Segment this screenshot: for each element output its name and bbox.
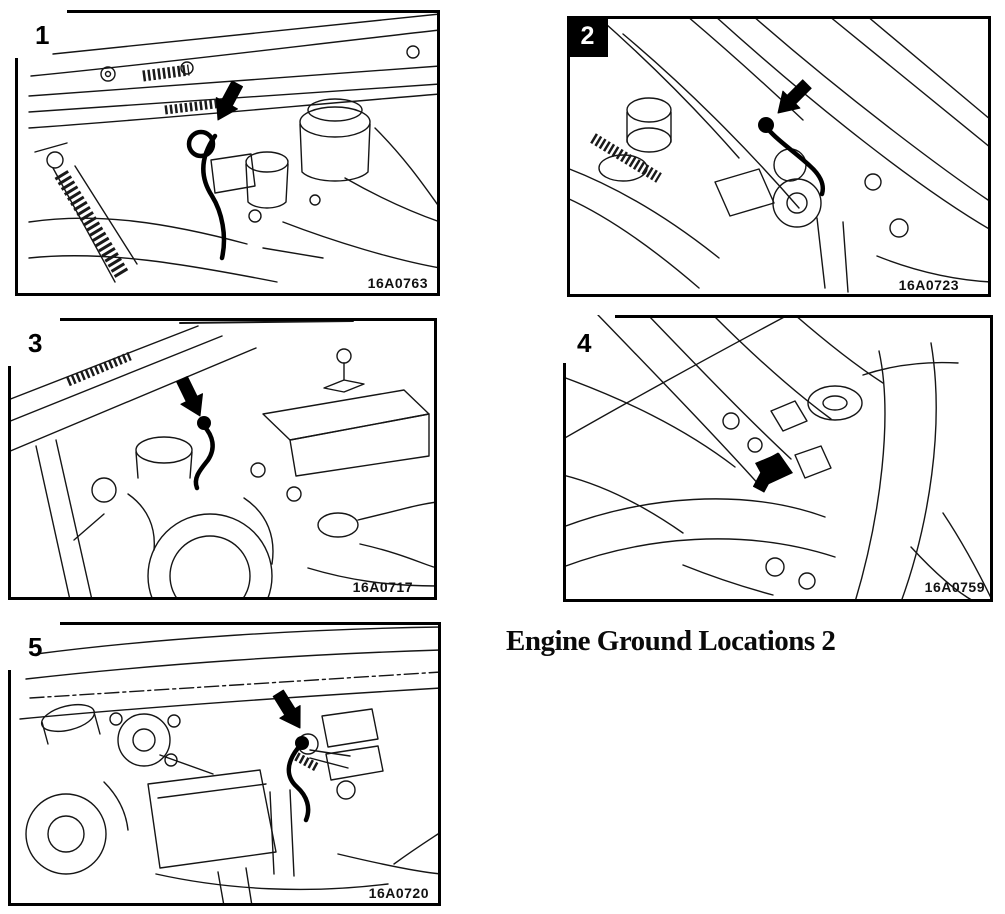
ground-location-arrow [177,377,203,417]
ground-strap-wire [196,426,213,488]
panel-border-top [67,10,440,13]
ground-strap-wire [767,128,823,194]
line-art-strokes [8,321,437,600]
panel-border-bottom [15,293,440,296]
panel-border-left [8,366,11,600]
panel-border-left [15,58,18,296]
ground-strap-wire [289,748,308,820]
ribbed-hose [292,754,318,768]
line-art-strokes [20,627,441,906]
panel-border-bottom [563,599,993,602]
engine-line-art-2 [567,16,991,297]
panel-border-left [563,363,566,602]
figure-code: 16A0717 [353,579,413,595]
panel-border-right [988,16,991,297]
engine-line-art-3 [8,318,437,600]
panel-number: 2 [567,16,608,57]
panel-number: 4 [577,330,591,356]
panel-number: 1 [35,22,49,48]
panel-border-right [438,622,441,906]
ground-terminal [295,736,309,750]
figure-panel-5: 5 16A0720 [8,622,441,906]
panel-border-left [8,670,11,906]
panel-number: 5 [28,634,42,660]
ground-location-arrow [273,690,300,728]
panel-border-bottom [8,903,441,906]
panel-border-right [437,10,440,296]
ribbed-hose [68,356,130,382]
figure-code: 16A0763 [368,275,428,291]
panel-border-bottom [567,294,991,297]
engine-line-art-4 [563,315,993,602]
panel-border-top [567,16,991,19]
engine-line-art-5 [8,622,441,906]
panel-border-left [567,16,570,297]
line-art-strokes [567,16,991,292]
figure-panel-1: 1 16A0763 [15,10,440,296]
panel-border-top [60,318,437,321]
panel-border-top [615,315,993,318]
ribbed-hose [593,138,659,178]
ground-location-arrow [216,81,242,120]
manual-page: 1 16A0763 [0,0,1005,914]
figure-panel-2: 2 16A0723 [567,16,991,297]
figure-panel-3: 3 16A0717 [8,318,437,600]
panel-border-right [990,315,993,602]
ground-strap-wire [189,132,224,258]
panel-border-top [60,622,441,625]
engine-line-art-1 [15,10,440,296]
panel-number: 3 [28,330,42,356]
figure-panel-4: 4 16A0759 [563,315,993,602]
ground-terminal [197,416,211,430]
line-art-strokes [29,14,440,282]
figure-code: 16A0720 [369,885,429,901]
page-title: Engine Ground Locations 2 [506,625,835,658]
figure-code: 16A0723 [899,277,959,293]
ground-terminal [758,117,774,133]
panel-border-bottom [8,597,437,600]
figure-code: 16A0759 [925,579,985,595]
panel-border-right [434,318,437,600]
